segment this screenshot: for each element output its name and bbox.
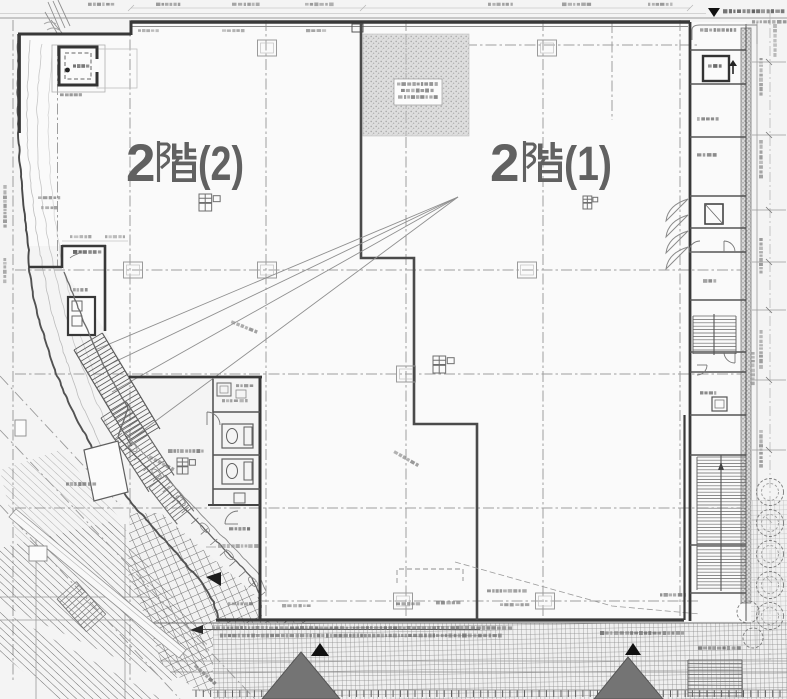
svg-text:(2): (2) xyxy=(198,138,244,191)
svg-text:(1): (1) xyxy=(564,138,612,191)
svg-text:2: 2 xyxy=(126,134,155,193)
svg-text:2: 2 xyxy=(490,134,519,193)
